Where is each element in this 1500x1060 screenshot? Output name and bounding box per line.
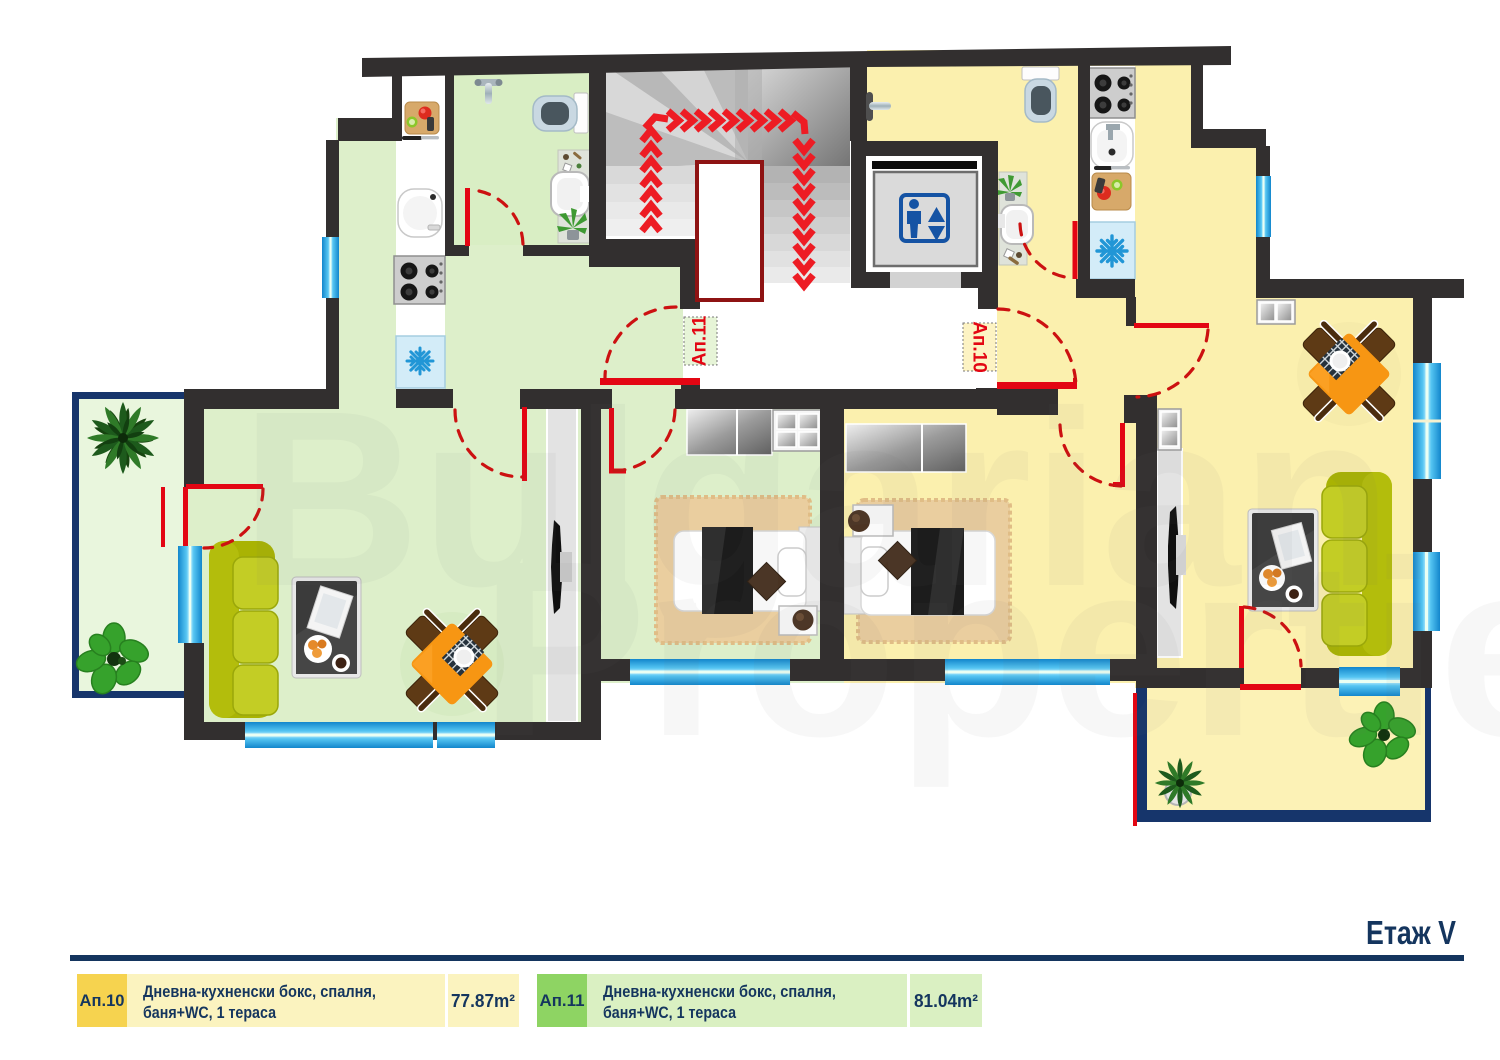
svg-text:Ап.11: Ап.11 xyxy=(540,991,585,1010)
svg-text:81.04m²: 81.04m² xyxy=(914,991,978,1011)
svg-text:Properties: Properties xyxy=(480,509,1500,788)
svg-text:Етаж V: Етаж V xyxy=(1366,914,1456,951)
svg-text:77.87m²: 77.87m² xyxy=(451,991,515,1011)
svg-text:Дневна-кухненски бокс, спалня,: Дневна-кухненски бокс, спалня, xyxy=(603,982,836,1001)
svg-text:баня+WC, 1 тераса: баня+WC, 1 тераса xyxy=(603,1003,736,1022)
svg-text:Дневна-кухненски бокс, спалня,: Дневна-кухненски бокс, спалня, xyxy=(143,982,376,1001)
svg-text:Ап.10: Ап.10 xyxy=(80,991,125,1010)
svg-text:баня+WC, 1 тераса: баня+WC, 1 тераса xyxy=(143,1003,276,1022)
